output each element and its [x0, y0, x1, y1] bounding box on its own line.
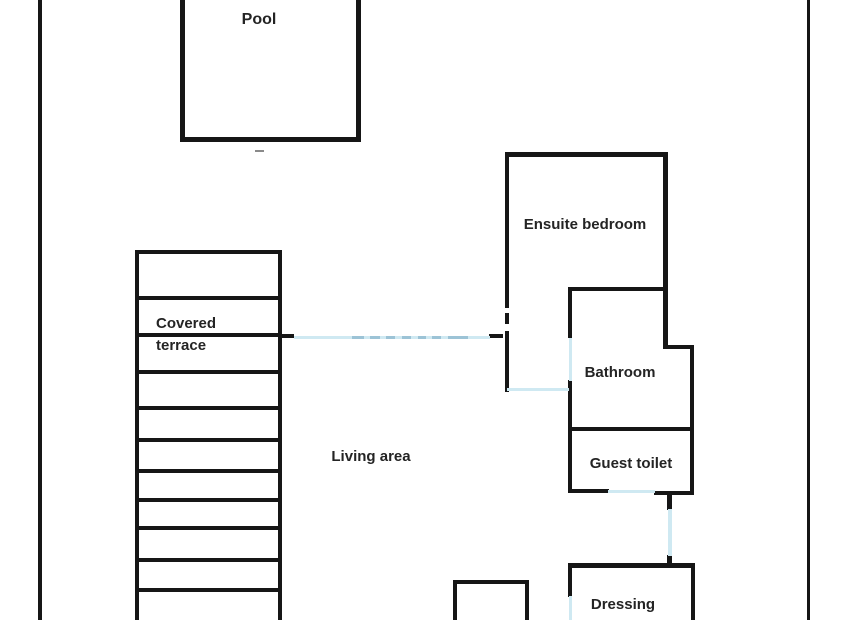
terrace-slat-6 [135, 469, 282, 473]
terrace-slat-7 [135, 498, 282, 502]
corridor-dash-d [402, 336, 411, 339]
ensuite-wall-left-upper [505, 152, 509, 308]
living-area-label: Living area [321, 449, 421, 466]
ensuite-wall-left-lower [505, 331, 509, 392]
corridor-dash-e [418, 336, 426, 339]
guest-toilet-door [608, 490, 655, 493]
terrace-wall-left [135, 250, 139, 620]
terrace-slat-2 [135, 333, 282, 337]
bathroom-wall-left-upper [568, 287, 572, 338]
small-room-wall-top [453, 580, 529, 584]
corridor-dash-g [448, 336, 468, 339]
right-wall-lower [690, 345, 694, 495]
pool-label: Pool [209, 11, 309, 29]
floor-plan: Pool Ensuite bedroom Covered terrace Bat… [0, 0, 850, 620]
terrace-slat-4 [135, 406, 282, 410]
ensuite-bedroom-label: Ensuite bedroom [505, 217, 665, 234]
dressing-wall-top [568, 563, 695, 568]
corridor-door-bottom [507, 388, 569, 391]
bathroom-guest-divider [568, 427, 694, 431]
terrace-slat-9 [135, 558, 282, 562]
corridor-dash-right [489, 334, 503, 338]
ensuite-wall-top [505, 152, 668, 157]
bathroom-wall-top [568, 287, 668, 291]
bathroom-door [569, 338, 572, 381]
terrace-slat-10 [135, 588, 282, 592]
terrace-wall-top [135, 250, 282, 254]
pool-wall-right [356, 0, 361, 142]
hall-connector [668, 509, 672, 556]
small-room-wall-left [453, 580, 457, 620]
corridor-dash-b [370, 336, 380, 339]
guest-toilet-bottom-right [654, 491, 694, 495]
terrace-slat-1 [135, 296, 282, 300]
ensuite-wall-left-dash [505, 313, 509, 324]
pool-edge-tick [255, 150, 264, 152]
ensuite-wall-right [663, 152, 668, 349]
covered-terrace-label-line1: Covered [156, 316, 216, 333]
corridor-dash-c [386, 336, 395, 339]
connector-stub-top [667, 493, 672, 510]
terrace-slat-3 [135, 370, 282, 374]
dressing-door [569, 596, 572, 620]
corridor-dash-f [432, 336, 441, 339]
small-room-wall-right [525, 582, 529, 620]
outer-border-left [38, 0, 42, 620]
corridor-stub-left [281, 334, 294, 338]
bathroom-label: Bathroom [570, 365, 670, 382]
terrace-slat-8 [135, 526, 282, 530]
guest-toilet-label: Guest toilet [568, 456, 694, 473]
bathroom-wall-left-lower [568, 380, 572, 492]
outer-border-right [807, 0, 810, 620]
terrace-slat-5 [135, 438, 282, 442]
dressing-wall-left [568, 563, 572, 597]
pool-wall-left [180, 0, 185, 142]
pool-wall-bottom [180, 137, 361, 142]
dressing-wall-right [691, 563, 695, 620]
dressing-label: Dressing [568, 597, 678, 614]
guest-toilet-bottom-left [568, 489, 609, 493]
covered-terrace-label-line2: terrace [156, 338, 206, 355]
terrace-wall-right [278, 250, 282, 620]
corridor-dash-a [352, 336, 364, 339]
